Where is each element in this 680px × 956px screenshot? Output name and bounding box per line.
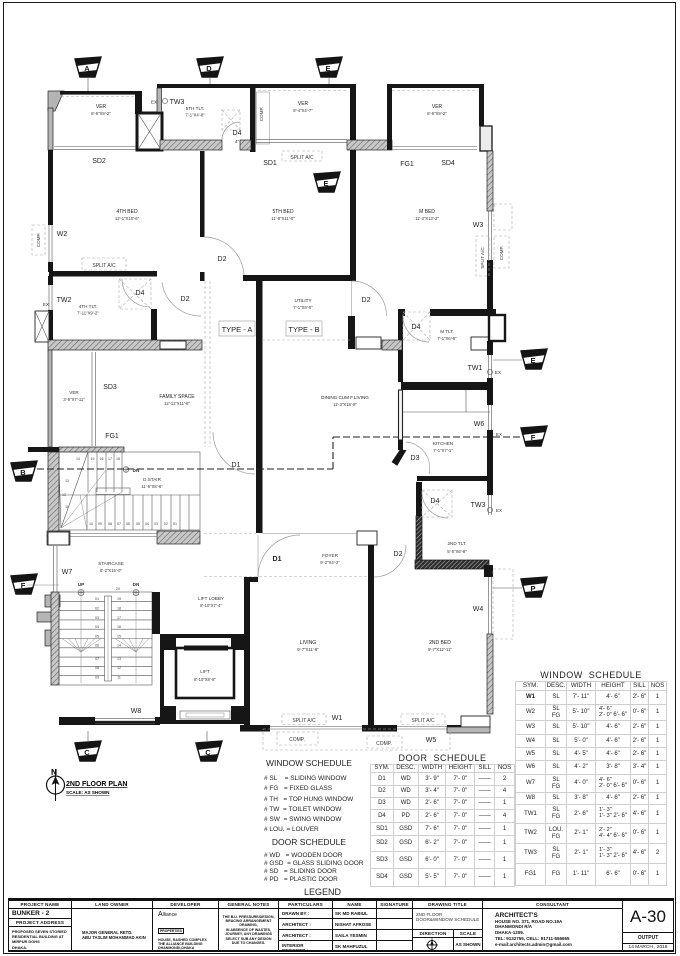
svg-text:20: 20 xyxy=(116,587,120,591)
svg-text:E: E xyxy=(323,179,328,188)
svg-text:W4: W4 xyxy=(473,606,484,613)
svg-text:8'-4"X4'-7": 8'-4"X4'-7" xyxy=(293,108,313,113)
svg-text:UP: UP xyxy=(78,582,84,587)
svg-text:SPLIT A/C: SPLIT A/C xyxy=(411,718,435,724)
svg-text:11'-3"X13'-2": 11'-3"X13'-2" xyxy=(415,216,439,221)
svg-text:D3: D3 xyxy=(411,455,420,462)
svg-text:TW1: TW1 xyxy=(468,365,483,372)
svg-text:D2: D2 xyxy=(394,551,403,558)
svg-text:TYPE - A: TYPE - A xyxy=(222,325,253,334)
svg-text:12: 12 xyxy=(117,666,121,670)
svg-text:8'-10"X8'-8": 8'-10"X8'-8" xyxy=(194,677,216,682)
svg-text:4": 4" xyxy=(235,139,240,144)
svg-text:D1: D1 xyxy=(273,556,282,563)
svg-text:FG1: FG1 xyxy=(400,161,414,168)
svg-text:D4: D4 xyxy=(136,290,145,297)
svg-text:07: 07 xyxy=(117,522,121,526)
svg-text:P: P xyxy=(530,584,535,593)
svg-text:EX: EX xyxy=(495,370,501,375)
svg-text:01: 01 xyxy=(173,522,177,526)
svg-text:14: 14 xyxy=(117,644,121,648)
svg-text:04: 04 xyxy=(95,625,99,629)
svg-text:03: 03 xyxy=(95,616,99,620)
svg-text:LIFT: LIFT xyxy=(200,669,210,674)
svg-text:16: 16 xyxy=(100,457,104,461)
svg-text:7'-1"X4'-8": 7'-1"X4'-8" xyxy=(185,113,205,118)
svg-text:12'-11"X11'-8": 12'-11"X11'-8" xyxy=(164,401,190,406)
svg-text:D: D xyxy=(206,64,212,73)
svg-text:03: 03 xyxy=(154,522,158,526)
svg-text:SPLIT A/C: SPLIT A/C xyxy=(92,263,116,269)
svg-text:W3: W3 xyxy=(473,222,484,229)
svg-text:W2: W2 xyxy=(57,231,68,238)
svg-text:09: 09 xyxy=(98,522,102,526)
svg-text:3'-8"X7'-11": 3'-8"X7'-11" xyxy=(63,397,85,402)
svg-text:15: 15 xyxy=(91,457,95,461)
svg-text:SPLIT A/C: SPLIT A/C xyxy=(292,718,316,724)
svg-text:8'-6"X9'-2": 8'-6"X9'-2" xyxy=(91,111,111,116)
svg-text:EX: EX xyxy=(496,508,502,513)
svg-text:TW2: TW2 xyxy=(57,297,72,304)
svg-text:VER: VER xyxy=(298,101,309,107)
svg-text:TW3: TW3 xyxy=(170,99,185,106)
svg-text:2ND BED: 2ND BED xyxy=(429,640,451,646)
svg-text:D4: D4 xyxy=(412,324,421,331)
svg-text:D2: D2 xyxy=(181,296,190,303)
svg-text:W6: W6 xyxy=(474,421,485,428)
svg-text:D4: D4 xyxy=(431,498,440,505)
svg-text:KITCHEN: KITCHEN xyxy=(433,441,453,446)
svg-text:VER: VER xyxy=(432,104,443,110)
svg-text:D2: D2 xyxy=(362,297,371,304)
svg-text:13: 13 xyxy=(117,657,121,661)
svg-text:05: 05 xyxy=(136,522,140,526)
svg-text:7'-1"X6'-8": 7'-1"X6'-8" xyxy=(437,336,457,341)
svg-text:VER: VER xyxy=(96,104,107,110)
svg-text:02: 02 xyxy=(95,607,99,611)
svg-text:9'-2"X4'-2": 9'-2"X4'-2" xyxy=(320,560,340,565)
svg-text:FG1: FG1 xyxy=(105,433,119,440)
svg-text:D2: D2 xyxy=(218,256,227,263)
svg-text:F: F xyxy=(21,581,26,590)
svg-text:08: 08 xyxy=(108,522,112,526)
svg-text:01: 01 xyxy=(95,597,99,601)
svg-text:COMP.: COMP. xyxy=(36,233,41,247)
svg-text:DN: DN xyxy=(133,582,140,587)
svg-text:02: 02 xyxy=(164,522,168,526)
svg-text:11'-6"X8'-6": 11'-6"X8'-6" xyxy=(141,484,163,489)
svg-text:09: 09 xyxy=(95,676,99,680)
svg-text:10: 10 xyxy=(89,522,93,526)
svg-text:2ND FLOOR PLAN: 2ND FLOOR PLAN xyxy=(66,781,127,788)
svg-text:UTILITY: UTILITY xyxy=(294,298,311,303)
svg-text:06: 06 xyxy=(95,644,99,648)
svg-text:17: 17 xyxy=(117,616,121,620)
svg-text:07: 07 xyxy=(95,657,99,661)
svg-text:M BED: M BED xyxy=(419,209,435,215)
svg-text:TW3: TW3 xyxy=(471,502,486,509)
svg-text:7'-1"X9'-0": 7'-1"X9'-0" xyxy=(293,305,313,310)
svg-text:EX: EX xyxy=(151,100,157,105)
svg-text:D1: D1 xyxy=(232,462,241,469)
svg-text:9'-7"X11'-8": 9'-7"X11'-8" xyxy=(297,647,319,652)
svg-text:B: B xyxy=(20,468,26,477)
svg-text:SPLIT A/C: SPLIT A/C xyxy=(480,247,485,269)
svg-text:5TH BED: 5TH BED xyxy=(272,209,294,215)
svg-text:11: 11 xyxy=(65,505,69,509)
svg-text:13: 13 xyxy=(65,479,69,483)
svg-text:W5: W5 xyxy=(426,737,437,744)
svg-text:E: E xyxy=(530,356,535,365)
svg-text:M TLT.: M TLT. xyxy=(440,329,454,334)
svg-text:08: 08 xyxy=(95,666,99,670)
svg-text:SCALE: AS SHOWN: SCALE: AS SHOWN xyxy=(66,790,110,795)
svg-text:04: 04 xyxy=(145,522,149,526)
svg-text:SD1: SD1 xyxy=(263,160,277,167)
svg-text:A: A xyxy=(84,64,90,73)
svg-text:COMP.: COMP. xyxy=(499,246,504,260)
svg-text:7'-1"X7'-1": 7'-1"X7'-1" xyxy=(433,448,453,453)
svg-text:W1: W1 xyxy=(332,715,343,722)
svg-text:SD2: SD2 xyxy=(92,158,106,165)
svg-text:LIFT LOBBY: LIFT LOBBY xyxy=(198,596,224,601)
svg-text:14: 14 xyxy=(76,457,80,461)
svg-text:E: E xyxy=(325,64,330,73)
svg-text:9'-7"X12'-11": 9'-7"X12'-11" xyxy=(428,647,452,652)
svg-text:FAMILY SPACE: FAMILY SPACE xyxy=(159,394,195,400)
svg-text:12'-1"X10'-6": 12'-1"X10'-6" xyxy=(115,216,140,221)
svg-text:05: 05 xyxy=(95,634,99,638)
svg-text:D4: D4 xyxy=(233,130,242,137)
svg-text:7'-11"X9'-2": 7'-11"X9'-2" xyxy=(77,311,99,316)
svg-text:5'-5"X6'-8": 5'-5"X6'-8" xyxy=(447,549,467,554)
svg-text:11: 11 xyxy=(117,676,121,680)
svg-text:TYPE - B: TYPE - B xyxy=(288,325,319,334)
svg-text:18: 18 xyxy=(116,457,120,461)
svg-text:COMP.: COMP. xyxy=(259,107,264,121)
svg-text:SD4: SD4 xyxy=(441,160,455,167)
svg-text:11'-8"X11'-0": 11'-8"X11'-0" xyxy=(271,216,295,221)
svg-text:F: F xyxy=(531,433,536,442)
svg-text:COMP.: COMP. xyxy=(289,737,305,743)
svg-text:8'-6"X9'-2": 8'-6"X9'-2" xyxy=(427,111,447,116)
svg-text:17: 17 xyxy=(108,457,112,461)
svg-text:DINING CUM F.LIVING: DINING CUM F.LIVING xyxy=(321,395,369,400)
svg-text:19: 19 xyxy=(117,597,121,601)
svg-text:COMP.: COMP. xyxy=(376,741,392,747)
svg-text:STAIRCASE: STAIRCASE xyxy=(98,561,124,566)
svg-text:4TH BED: 4TH BED xyxy=(116,209,138,215)
svg-text:8'-2"X15'-0": 8'-2"X15'-0" xyxy=(100,568,122,573)
svg-text:18: 18 xyxy=(117,607,121,611)
svg-text:D.STAIR: D.STAIR xyxy=(143,477,161,482)
svg-text:2ND TLT.: 2ND TLT. xyxy=(448,541,467,546)
svg-text:FOYER: FOYER xyxy=(322,553,339,558)
svg-text:SD3: SD3 xyxy=(103,384,117,391)
svg-text:W7: W7 xyxy=(62,569,73,576)
svg-text:4TH TLT.: 4TH TLT. xyxy=(79,304,97,309)
svg-text:8'-10"X7'-4": 8'-10"X7'-4" xyxy=(200,603,222,608)
svg-text:06: 06 xyxy=(126,522,130,526)
svg-text:SPLIT A/C: SPLIT A/C xyxy=(290,155,314,161)
svg-text:16: 16 xyxy=(117,625,121,629)
svg-text:11'-3"X18'-8": 11'-3"X18'-8" xyxy=(333,402,357,407)
svg-text:5TH TLT.: 5TH TLT. xyxy=(186,106,204,111)
svg-text:15: 15 xyxy=(117,634,121,638)
svg-text:LIVING: LIVING xyxy=(300,640,317,646)
svg-text:EX: EX xyxy=(43,302,49,307)
svg-text:VER: VER xyxy=(69,390,79,395)
svg-text:EX: EX xyxy=(496,432,502,437)
svg-text:W8: W8 xyxy=(131,708,142,715)
